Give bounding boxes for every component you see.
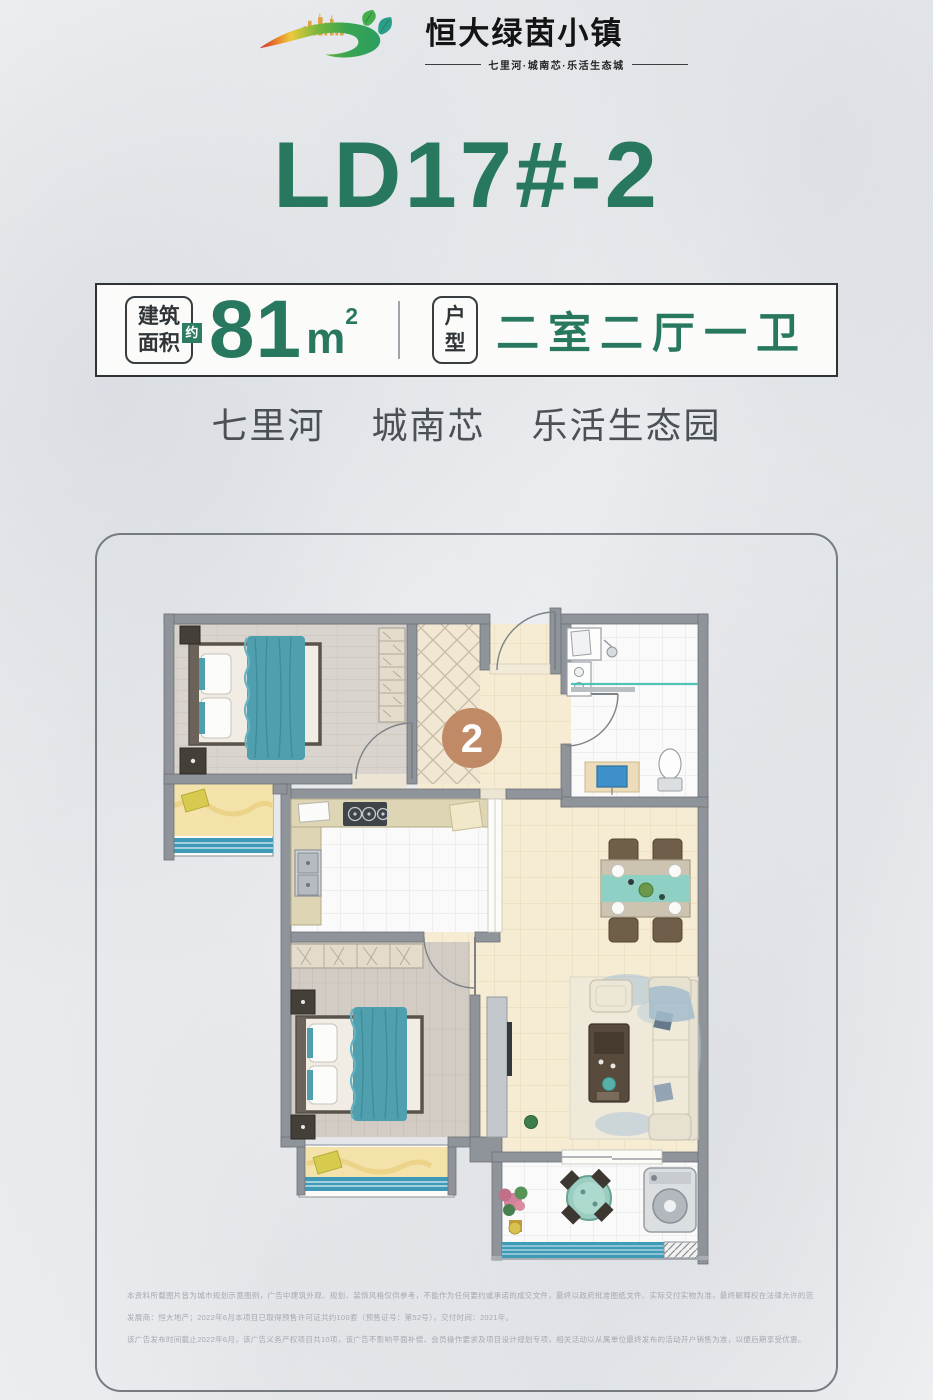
area-unit-base: m <box>306 317 345 361</box>
floorplan-drawing: 2 <box>157 592 717 1282</box>
swoosh-icon <box>260 22 381 57</box>
disclaimer-line: 本资料所载图片皆为城市规划示意图例，广告中建筑外观、规划、装饰风格仅供参考，不能… <box>127 1285 814 1307</box>
disclaimer: 本资料所载图片皆为城市规划示意图例，广告中建筑外观、规划、装饰风格仅供参考，不能… <box>127 1285 814 1350</box>
subtitle-part: 七里河 <box>211 397 325 449</box>
disclaimer-line: 该广告发布时间截止2022年6月，该广告义务产权项目共10项，该广告不影响平面补… <box>127 1329 814 1351</box>
area-unit: m 2 <box>306 299 358 361</box>
brand-logo-icon <box>245 8 413 72</box>
subtitle-part: 乐活生态园 <box>532 397 722 449</box>
location-subtitle: 七里河 城南芯 乐活生态园 <box>0 397 933 449</box>
brand-header: 恒大绿茵小镇 七里河·城南芯·乐活生态城 <box>0 8 933 72</box>
area-label-box: 建筑 面积 约 <box>125 296 193 364</box>
area-value: 81 <box>209 289 302 371</box>
floorplan-card: 2 <box>95 533 838 1392</box>
leaf-icon <box>363 10 377 26</box>
spec-box: 建筑 面积 约 81 m 2 户 型 二室二厅一卫 <box>95 283 838 377</box>
bay-window-bedroom1 <box>169 784 273 856</box>
plant-icon <box>525 1116 538 1129</box>
unit-number-badge: 2 <box>442 708 502 768</box>
unit-title: LD17#-2 <box>0 126 933 225</box>
type-value: 二室二厅一卫 <box>496 299 808 361</box>
balcony-sliding-door <box>562 1150 662 1164</box>
disclaimer-line: 发展商：恒大地产；2022年6月本项目已取得预售许可证共约100套（预售证号：第… <box>127 1307 814 1329</box>
type-label-box: 户 型 <box>432 296 478 364</box>
entry-threshold <box>490 664 550 674</box>
brand-name: 恒大绿茵小镇 <box>425 8 687 53</box>
type-label-char2: 型 <box>445 330 466 357</box>
unit-number-text: 2 <box>461 717 483 761</box>
leaf-icon <box>379 17 393 34</box>
bay-window-bedroom2 <box>299 1145 454 1197</box>
tagline-rule-right <box>632 64 688 65</box>
type-label-char1: 户 <box>445 303 466 330</box>
brand-text-block: 恒大绿茵小镇 七里河·城南芯·乐活生态城 <box>425 8 687 72</box>
approx-badge: 约 <box>182 323 202 343</box>
poster-page: 恒大绿茵小镇 七里河·城南芯·乐活生态城 LD17#-2 建筑 面积 约 81 … <box>0 0 933 1400</box>
area-label-line2: 面积 <box>138 330 180 357</box>
spec-divider <box>398 301 400 359</box>
tv-icon <box>507 1022 512 1076</box>
area-label-line1: 建筑 <box>138 303 180 330</box>
brand-tagline: 七里河·城南芯·乐活生态城 <box>488 57 624 72</box>
tagline-rule-left <box>425 64 481 65</box>
brand-tagline-row: 七里河·城南芯·乐活生态城 <box>425 57 687 72</box>
subtitle-part: 城南芯 <box>371 397 485 449</box>
area-unit-exponent: 2 <box>345 305 358 328</box>
